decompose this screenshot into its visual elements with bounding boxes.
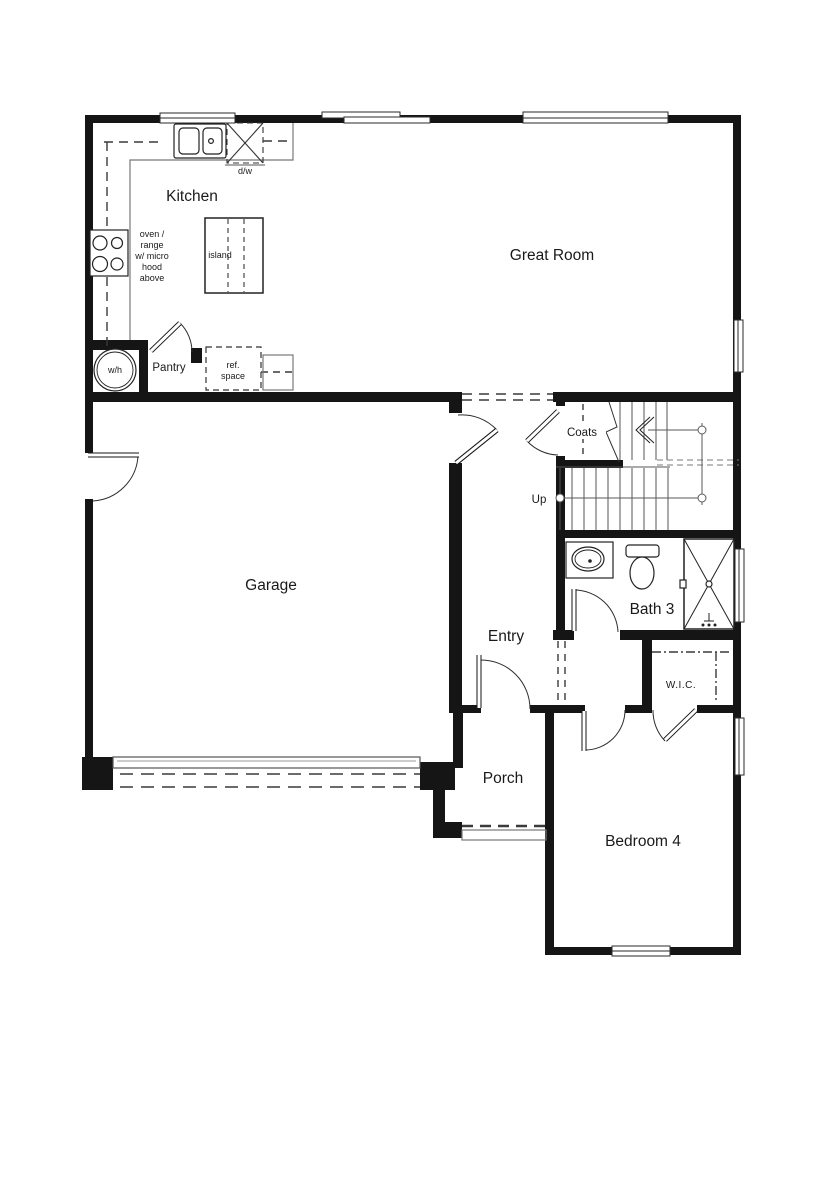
label-dw: d/w: [238, 166, 253, 176]
dishwasher: [227, 123, 263, 163]
porch-stoop: [462, 830, 546, 840]
window-bath-right: [735, 549, 744, 622]
label-island: island: [208, 250, 232, 260]
svg-text:oven /: oven /: [140, 229, 165, 239]
wall-garage-corner: [82, 757, 113, 790]
wall-stairs-bottom: [556, 530, 740, 538]
kitchen-sink: [174, 124, 226, 158]
wall-left: [85, 115, 93, 760]
wall-wic-left: [642, 640, 652, 707]
svg-text:range: range: [140, 240, 163, 250]
window-great-room-top: [523, 112, 668, 123]
wall-porch-left-upper: [453, 713, 463, 768]
bedroom4-door-arc: [585, 710, 625, 750]
label-kitchen: Kitchen: [166, 188, 218, 205]
wall-pantry-jamb: [191, 348, 202, 363]
walls: [82, 115, 741, 955]
garage-door: [113, 757, 420, 768]
label-bath3: Bath 3: [630, 601, 675, 618]
label-wh: w/h: [107, 365, 122, 375]
cooktop-range: [90, 230, 128, 276]
bath3-shower: [680, 539, 734, 629]
garage-side-door-arc: [93, 456, 138, 501]
front-door-arc: [481, 660, 530, 709]
floor-plan-drawing: Kitchen Great Room Garage Entry Porch Be…: [0, 0, 840, 1189]
label-great-room: Great Room: [510, 247, 594, 264]
garage-hall-door-arc: [458, 415, 497, 430]
window-great-room-right: [734, 320, 743, 372]
bath3-toilet: [626, 545, 659, 589]
stairs-lower-treads: [560, 468, 668, 530]
label-garage: Garage: [245, 577, 297, 594]
label-up: Up: [532, 494, 547, 506]
label-pantry: Pantry: [152, 362, 185, 374]
window-kitchen-sink: [160, 113, 235, 123]
label-ref-2: space: [221, 371, 245, 381]
dashed-lines: [104, 141, 732, 826]
svg-text:hood: hood: [142, 262, 162, 272]
bath3-vanity: [566, 542, 613, 578]
pantry-door-arc: [180, 323, 192, 352]
counters: [130, 123, 546, 840]
svg-text:above: above: [140, 273, 165, 283]
wall-porch-corner: [420, 762, 455, 790]
label-coats: Coats: [567, 427, 597, 439]
label-porch: Porch: [483, 770, 524, 787]
window-bedroom-bottom: [612, 946, 670, 956]
shower-door-handle: [680, 580, 686, 588]
stairs-break-line: [606, 402, 619, 462]
label-wic: W.I.C.: [666, 680, 696, 691]
label-ref-1: ref.: [226, 360, 239, 370]
wall-mid-horizontal: [85, 392, 740, 402]
wic-door-arc: [653, 710, 665, 741]
label-range-note: oven / range w/ micro hood above: [134, 229, 169, 283]
bath3-door-arc: [574, 590, 618, 632]
window-bedroom-right: [735, 718, 744, 775]
coats-door-arc: [527, 441, 558, 455]
label-bedroom4: Bedroom 4: [605, 833, 681, 850]
wall-wh-pantry-divider: [139, 340, 148, 392]
label-entry: Entry: [488, 628, 524, 645]
floor-plan-page: Kitchen Great Room Garage Entry Porch Be…: [0, 0, 840, 1189]
svg-text:w/ micro: w/ micro: [134, 251, 169, 261]
stairs-upper-treads: [620, 402, 667, 460]
wall-porch-bottom-post: [433, 822, 462, 838]
